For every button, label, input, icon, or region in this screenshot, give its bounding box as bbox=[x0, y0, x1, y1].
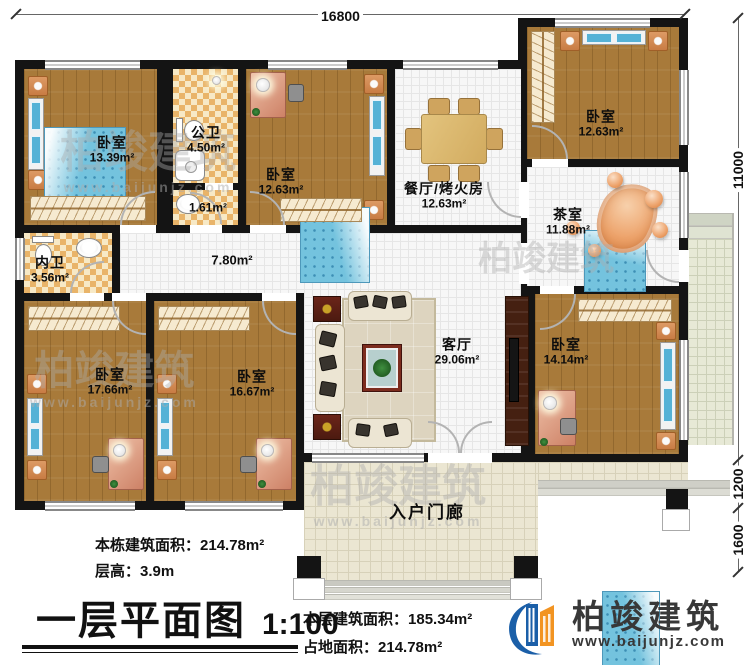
note-label: 本层建筑面积： bbox=[303, 611, 408, 628]
porch-column bbox=[514, 556, 538, 578]
brand-logo-icon bbox=[502, 594, 566, 662]
room-label-public-bath: 公卫 4.50m² bbox=[187, 125, 225, 154]
room-area: 13.39m² bbox=[90, 151, 135, 164]
window bbox=[679, 340, 689, 440]
note-label: 本栋建筑面积： bbox=[95, 537, 200, 554]
room-area: 7.80m² bbox=[211, 254, 252, 269]
chair-icon bbox=[288, 84, 304, 102]
room-area: 12.63m² bbox=[259, 183, 304, 196]
room-name: 卧室 bbox=[579, 109, 624, 125]
room-label-bedroom-top-left: 卧室 13.39m² bbox=[90, 135, 135, 164]
window bbox=[268, 60, 347, 70]
desk-lamp-icon bbox=[256, 78, 270, 92]
sofa-pillow-icon bbox=[372, 295, 388, 310]
drawing-title: 一层平面图 bbox=[36, 588, 246, 646]
brand-name: 柏竣建筑 bbox=[572, 600, 725, 633]
room-area: 3.56m² bbox=[31, 271, 69, 284]
dimension-right-value: 11000 bbox=[730, 148, 746, 192]
dining-chair-icon bbox=[486, 128, 503, 150]
door-opening bbox=[120, 225, 156, 233]
dimension-top-value: 16800 bbox=[318, 8, 363, 24]
note-label: 占地面积： bbox=[303, 639, 378, 656]
watermark-url: www.baijunjz.com bbox=[60, 179, 236, 195]
note-value: 3.9m bbox=[140, 563, 174, 580]
dining-chair-icon bbox=[458, 165, 480, 182]
note-building-area: 本栋建筑面积：214.78m² bbox=[95, 534, 264, 555]
sofa-pillow-icon bbox=[391, 295, 407, 309]
plant-icon bbox=[540, 438, 548, 446]
room-label-hallway: 7.80m² bbox=[211, 254, 252, 269]
watermark-text: 柏竣建筑 bbox=[478, 240, 614, 278]
nightstand-icon bbox=[27, 460, 47, 480]
drawing-title-row: 一层平面图 1:100 bbox=[36, 588, 339, 646]
door-opening bbox=[532, 159, 568, 167]
brand-site: www.baijunjz.com bbox=[572, 633, 725, 650]
room-name: 卧室 bbox=[259, 167, 304, 183]
note-value: 214.78m² bbox=[200, 537, 264, 554]
room-label-bedroom-bottom-middle: 卧室 16.67m² bbox=[230, 369, 275, 398]
room-name: 内卫 bbox=[31, 255, 69, 271]
nightstand-icon bbox=[648, 31, 668, 51]
room-label-tea-room: 茶室 11.88m² bbox=[546, 207, 590, 236]
plant-icon bbox=[258, 480, 266, 488]
dining-table-icon bbox=[421, 114, 487, 164]
desk-lamp-icon bbox=[543, 396, 557, 410]
side-porch-floor bbox=[688, 239, 732, 445]
note-ground-area: 占地面积：214.78m² bbox=[303, 636, 442, 657]
end-table-icon bbox=[313, 414, 341, 440]
plant-icon bbox=[110, 480, 118, 488]
porch-column-base bbox=[662, 509, 690, 531]
note-level-area: 本层建筑面积：185.34m² bbox=[303, 608, 472, 629]
side-porch-step bbox=[688, 226, 732, 239]
window bbox=[185, 501, 283, 511]
note-value: 214.78m² bbox=[378, 639, 442, 656]
pillow-icon bbox=[663, 348, 673, 382]
plant-icon bbox=[373, 359, 391, 377]
end-table-icon bbox=[313, 296, 341, 322]
window bbox=[45, 60, 140, 70]
porch-step bbox=[325, 594, 511, 600]
room-area: 14.14m² bbox=[544, 353, 589, 366]
window bbox=[679, 70, 689, 145]
dimension-right-steps-value: 1600 bbox=[730, 521, 746, 558]
room-area: 4.50m² bbox=[187, 141, 225, 154]
room-name: 卧室 bbox=[230, 369, 275, 385]
dining-chair-icon bbox=[458, 98, 480, 115]
right-step bbox=[538, 480, 740, 488]
pillow-icon bbox=[160, 428, 170, 450]
nightstand-icon bbox=[560, 31, 580, 51]
tv-icon bbox=[509, 338, 519, 402]
building-logo-icon bbox=[502, 594, 566, 662]
pillow-icon bbox=[616, 33, 642, 43]
room-label-private-bath: 内卫 3.56m² bbox=[31, 255, 69, 284]
room-area: 17.66m² bbox=[88, 383, 133, 396]
right-step bbox=[538, 488, 740, 496]
room-area: 29.06m² bbox=[435, 353, 480, 366]
door-opening bbox=[679, 250, 689, 282]
room-label-wash-area: 1.61m² bbox=[189, 201, 227, 214]
sink-icon bbox=[76, 238, 102, 258]
side-porch-step bbox=[688, 213, 732, 226]
wardrobe-icon bbox=[280, 198, 362, 222]
room-area: 11.88m² bbox=[546, 223, 590, 236]
nightstand-icon bbox=[364, 74, 384, 94]
porch-column bbox=[297, 556, 321, 578]
tea-stool-icon bbox=[645, 190, 663, 208]
window bbox=[679, 172, 689, 238]
nightstand-icon bbox=[157, 460, 177, 480]
dining-chair-icon bbox=[405, 128, 422, 150]
note-floor-height: 层高：3.9m bbox=[95, 560, 174, 581]
note-value: 185.34m² bbox=[408, 611, 472, 628]
dining-chair-icon bbox=[428, 98, 450, 115]
side-porch bbox=[688, 213, 734, 445]
plant-icon bbox=[252, 108, 260, 116]
brand-block: 柏竣建筑 www.baijunjz.com bbox=[572, 600, 725, 650]
pillow-icon bbox=[663, 388, 673, 422]
door-opening bbox=[250, 225, 286, 233]
room-name: 卧室 bbox=[90, 135, 135, 151]
room-area: 12.63m² bbox=[404, 197, 484, 210]
pillow-icon bbox=[31, 136, 41, 164]
window bbox=[555, 18, 650, 28]
porch-column bbox=[666, 489, 688, 509]
right-porch-floor bbox=[538, 462, 688, 480]
door-opening bbox=[190, 225, 222, 233]
dimension-right-porch-value: 1200 bbox=[730, 465, 746, 502]
room-name: 茶室 bbox=[546, 207, 590, 223]
room-area: 16.67m² bbox=[230, 385, 275, 398]
wardrobe-icon bbox=[158, 306, 250, 331]
tea-stool-icon bbox=[607, 172, 623, 188]
room-name: 餐厅/烤火房 bbox=[404, 181, 484, 197]
room-label-bedroom-top-right: 卧室 12.63m² bbox=[579, 109, 624, 138]
door-opening bbox=[262, 293, 296, 301]
pillow-icon bbox=[31, 102, 41, 130]
window bbox=[15, 238, 25, 280]
pillow-icon bbox=[372, 136, 382, 166]
door-opening bbox=[70, 293, 104, 301]
sofa-pillow-icon bbox=[353, 295, 369, 309]
chair-icon bbox=[560, 418, 577, 435]
porch-step bbox=[325, 587, 511, 593]
title-underline bbox=[22, 645, 298, 649]
pillow-icon bbox=[586, 33, 612, 43]
room-name: 卧室 bbox=[88, 367, 133, 383]
door-opening bbox=[540, 286, 574, 294]
room-label-dining: 餐厅/烤火房 12.63m² bbox=[404, 181, 484, 210]
watermark: 柏竣建筑 bbox=[478, 240, 614, 279]
light-icon bbox=[212, 76, 221, 85]
room-area: 1.61m² bbox=[189, 201, 227, 214]
nightstand-icon bbox=[656, 322, 676, 340]
floor-plan: 柏竣建筑 www.baijunjz.com 柏竣建筑 柏竣建筑 www.baij… bbox=[0, 0, 750, 665]
pillow-icon bbox=[30, 428, 40, 450]
room-name: 卧室 bbox=[544, 337, 589, 353]
wardrobe-icon bbox=[578, 299, 672, 322]
room-label-bedroom-bottom-left: 卧室 17.66m² bbox=[88, 367, 133, 396]
wardrobe-icon bbox=[531, 31, 555, 123]
room-name: 客厅 bbox=[435, 337, 480, 353]
room-name: 入户门廊 bbox=[389, 503, 465, 522]
desk-lamp-icon bbox=[113, 444, 126, 457]
desk-lamp-icon bbox=[261, 444, 274, 457]
nightstand-icon bbox=[656, 432, 676, 450]
pillow-icon bbox=[372, 100, 382, 130]
porch-step bbox=[325, 580, 511, 586]
window bbox=[45, 501, 135, 511]
room-label-living: 客厅 29.06m² bbox=[435, 337, 480, 366]
room-area: 12.63m² bbox=[579, 125, 624, 138]
room-name: 公卫 bbox=[187, 125, 225, 141]
dining-chair-icon bbox=[428, 165, 450, 182]
nightstand-icon bbox=[28, 76, 48, 96]
room-label-bedroom-top-middle: 卧室 12.63m² bbox=[259, 167, 304, 196]
sofa-pillow-icon bbox=[319, 381, 337, 398]
door-opening bbox=[112, 293, 146, 301]
chair-icon bbox=[240, 456, 257, 473]
chair-icon bbox=[92, 456, 109, 473]
room-label-bedroom-bottom-right: 卧室 14.14m² bbox=[544, 337, 589, 366]
sofa-pillow-icon bbox=[355, 423, 371, 437]
toilet-icon bbox=[32, 236, 54, 243]
window bbox=[403, 60, 498, 70]
wardrobe-icon bbox=[28, 306, 120, 331]
title-underline-thin bbox=[22, 652, 298, 653]
note-label: 层高： bbox=[95, 563, 140, 580]
room-label-entry-porch: 入户门廊 bbox=[389, 503, 465, 523]
tea-stool-icon bbox=[652, 222, 668, 238]
